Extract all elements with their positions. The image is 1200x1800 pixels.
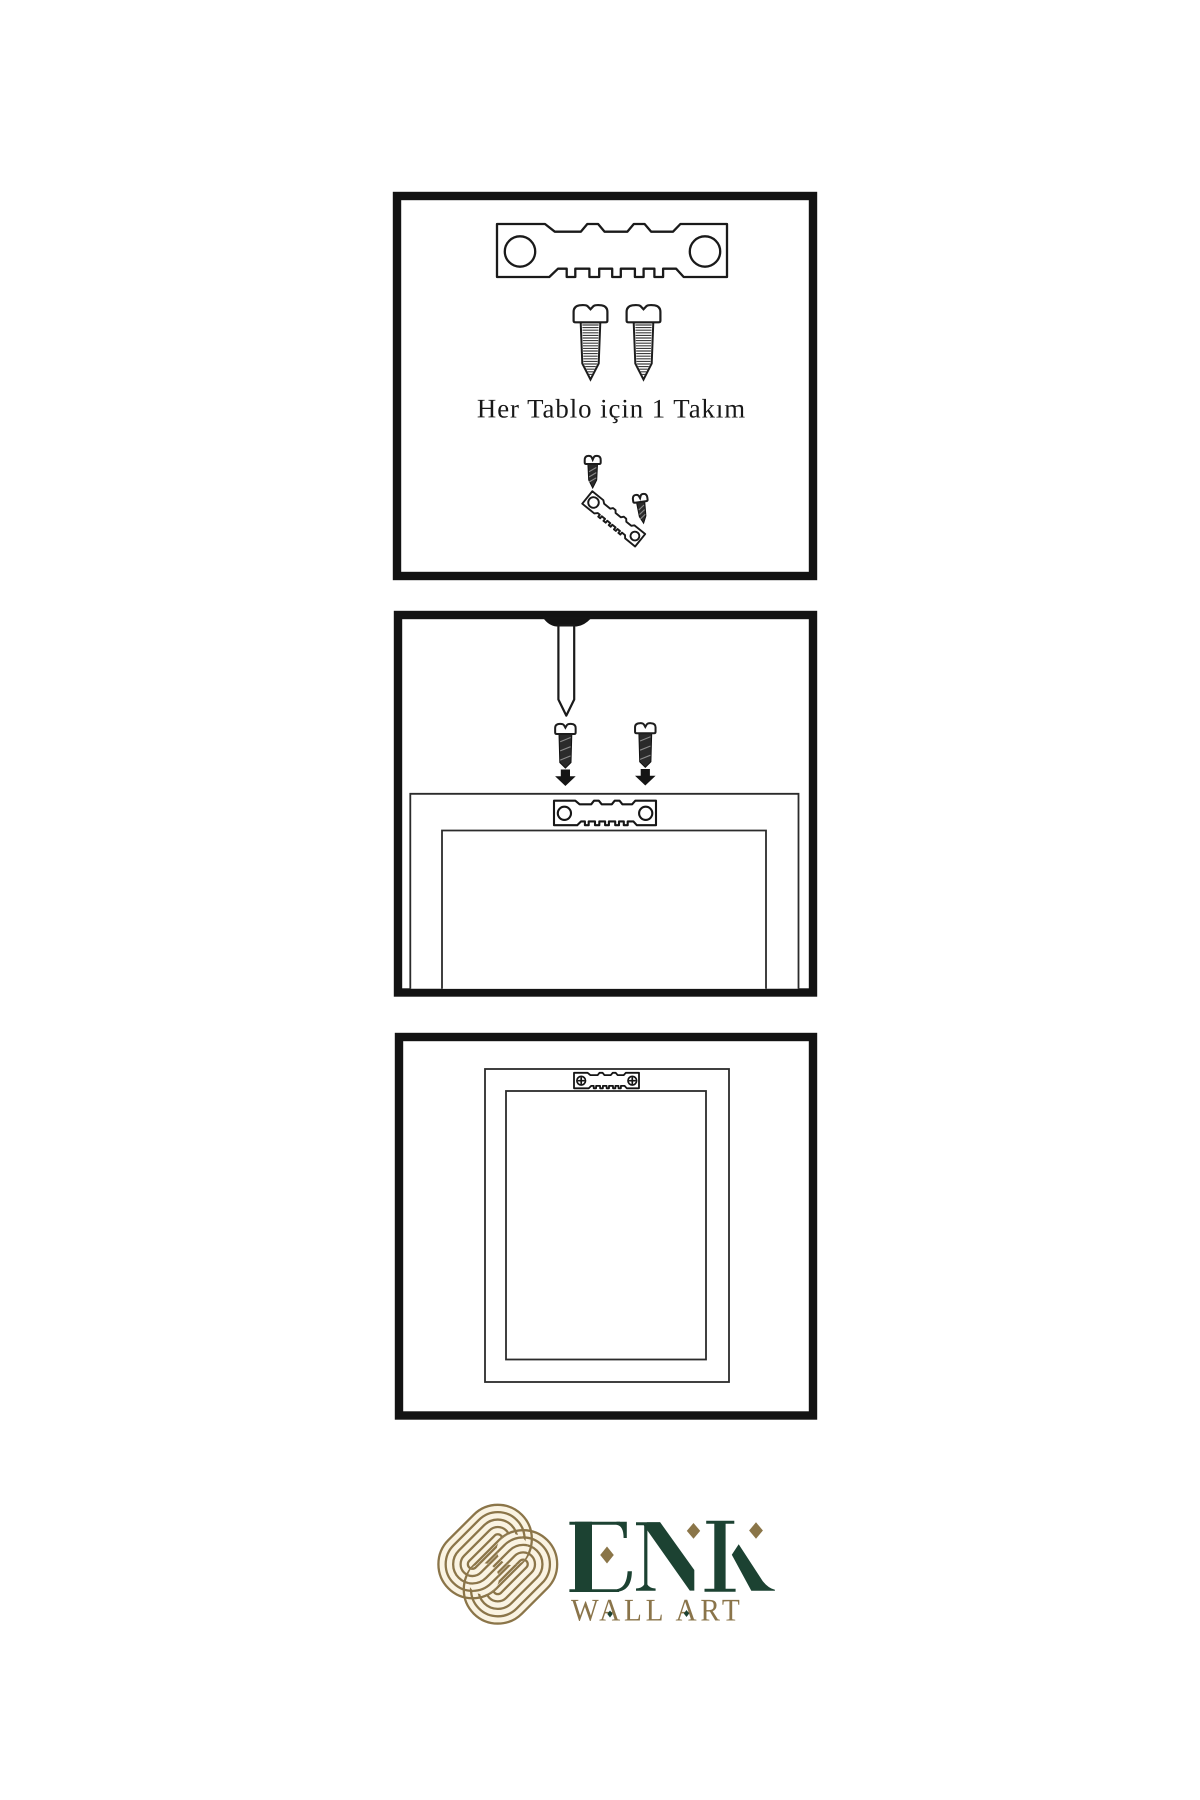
svg-text:Her Tablo için 1 Takım: Her Tablo için 1 Takım <box>477 393 746 423</box>
svg-text:WALL ART: WALL ART <box>571 1592 744 1627</box>
